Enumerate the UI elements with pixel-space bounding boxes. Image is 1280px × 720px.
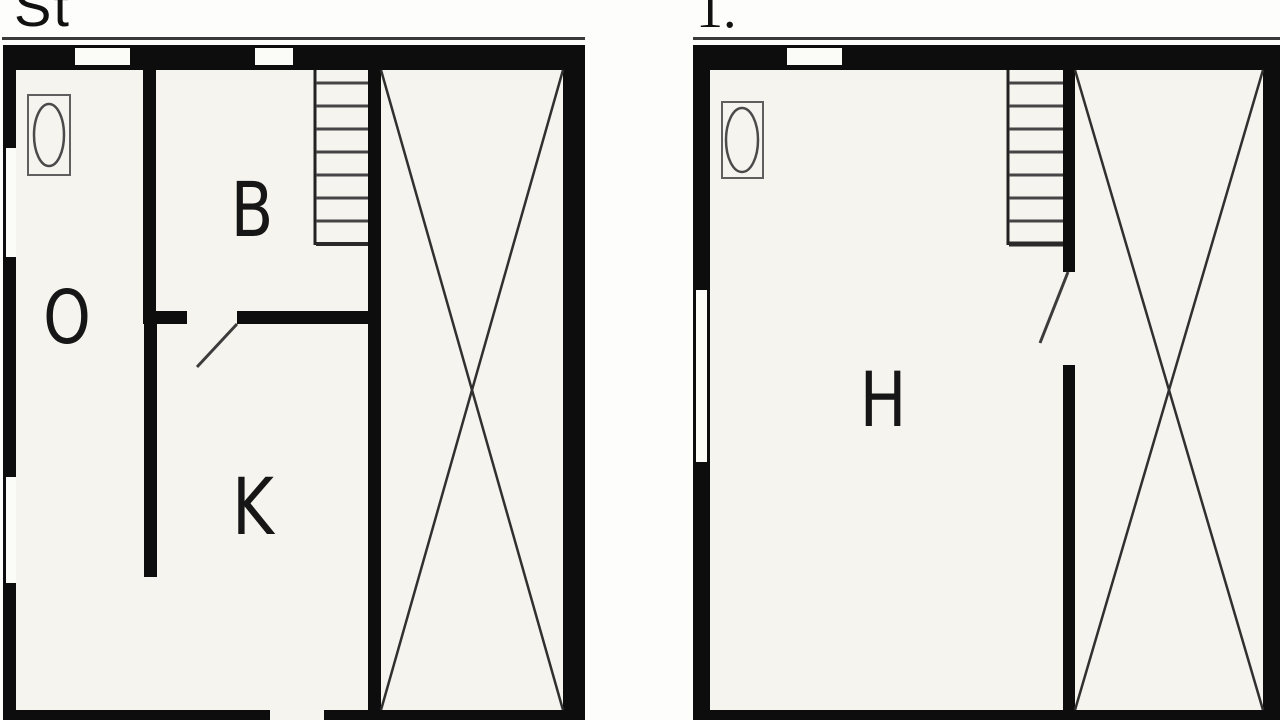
room-label-o: O <box>43 281 91 355</box>
floor-plan-drawing: O B K H <box>0 0 1280 720</box>
right-plan-top-wall <box>693 45 1280 70</box>
room-label-h: H <box>860 362 907 438</box>
right-plan-right-wall <box>1263 45 1280 720</box>
room-label-b: B <box>231 172 274 248</box>
left-plan-bottom-wall <box>324 710 585 720</box>
left-plan-title: St <box>14 0 71 35</box>
left-plan-left-wall <box>3 45 16 720</box>
window-opening <box>696 290 707 462</box>
room-label-k: K <box>232 469 274 547</box>
window-opening <box>6 477 16 583</box>
window-opening <box>255 48 293 65</box>
wall-o-b-divider <box>143 70 156 320</box>
wall-h-void-divider <box>1063 365 1075 710</box>
left-plan-bottom-wall <box>3 710 270 720</box>
left-plan-right-wall <box>563 45 585 720</box>
right-plan-title: 1. <box>696 0 737 36</box>
right-plan-bottom-wall <box>693 710 1280 720</box>
right-plan-floor <box>693 45 1280 720</box>
wall-b-k-divider <box>143 311 187 324</box>
window-opening <box>6 148 16 257</box>
wall-b-k-divider <box>237 311 378 324</box>
wall-void-divider <box>368 70 381 710</box>
left-plan-floor <box>3 45 585 720</box>
right-plan-roof-line <box>693 37 1280 40</box>
window-opening <box>787 48 842 65</box>
window-opening <box>75 48 130 65</box>
wall-h-void-divider <box>1063 70 1075 272</box>
left-plan-roof-line <box>2 37 585 40</box>
wall-o-k-divider <box>144 324 157 577</box>
